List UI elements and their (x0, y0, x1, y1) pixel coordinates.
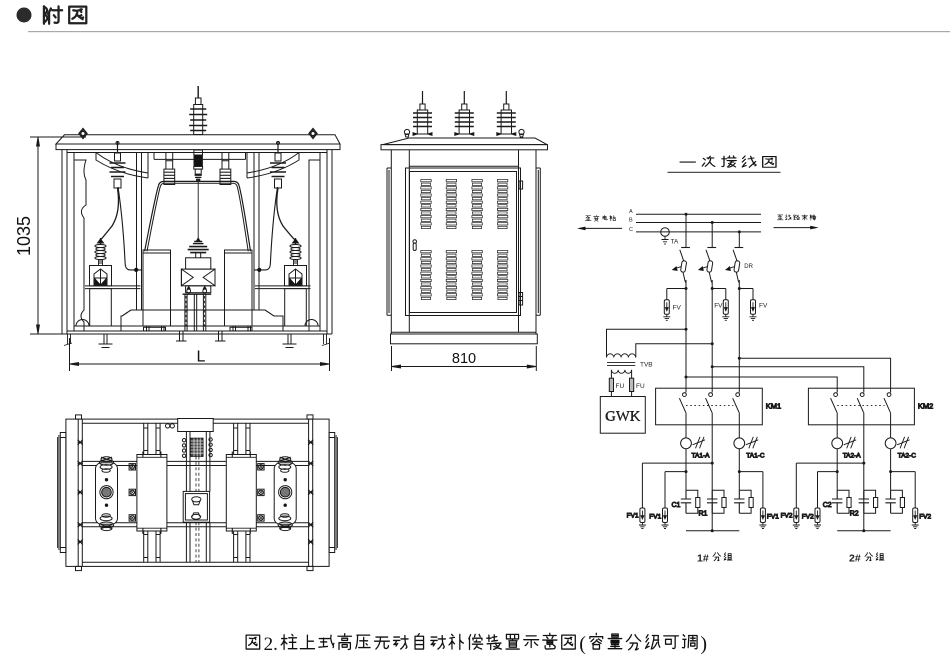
svg-text:FV2: FV2 (919, 514, 931, 521)
svg-text:TA1-A: TA1-A (692, 453, 711, 460)
svg-text:FV1: FV1 (767, 514, 779, 521)
svg-text:810: 810 (452, 351, 476, 367)
svg-text:C1: C1 (672, 502, 681, 509)
svg-text:FV: FV (714, 303, 723, 310)
svg-text:FV1: FV1 (627, 513, 639, 520)
svg-text:FU: FU (616, 383, 625, 390)
svg-text:R2: R2 (850, 511, 859, 518)
svg-text:A: A (629, 209, 633, 215)
svg-text:TA: TA (671, 239, 679, 246)
svg-text:FV: FV (673, 305, 682, 312)
svg-text:1#: 1# (697, 553, 709, 565)
svg-text:1035: 1035 (14, 216, 34, 256)
svg-text:DR: DR (744, 264, 753, 270)
svg-text:(: ( (579, 633, 586, 655)
svg-text:C: C (629, 227, 633, 233)
svg-text:TA2-A: TA2-A (843, 453, 862, 460)
svg-text:FV2: FV2 (802, 514, 814, 521)
svg-text:KM1: KM1 (766, 402, 781, 411)
svg-text:TA1-C: TA1-C (746, 453, 765, 460)
svg-text:2#: 2# (849, 553, 861, 565)
svg-text:TA2-C: TA2-C (898, 453, 917, 460)
svg-text:FV: FV (759, 303, 768, 310)
svg-text:FU: FU (636, 383, 645, 390)
svg-text:TVB: TVB (640, 362, 653, 369)
svg-text:GWK: GWK (605, 409, 641, 425)
svg-text:R1: R1 (699, 511, 708, 518)
svg-text:FV2: FV2 (781, 513, 793, 520)
svg-text:FV1: FV1 (649, 514, 661, 521)
svg-text:L: L (197, 349, 206, 366)
svg-text:): ) (700, 633, 707, 655)
svg-text:KM2: KM2 (918, 402, 933, 411)
svg-text:B: B (629, 218, 633, 224)
svg-text:C2: C2 (823, 502, 832, 509)
svg-text:2.: 2. (264, 634, 278, 655)
